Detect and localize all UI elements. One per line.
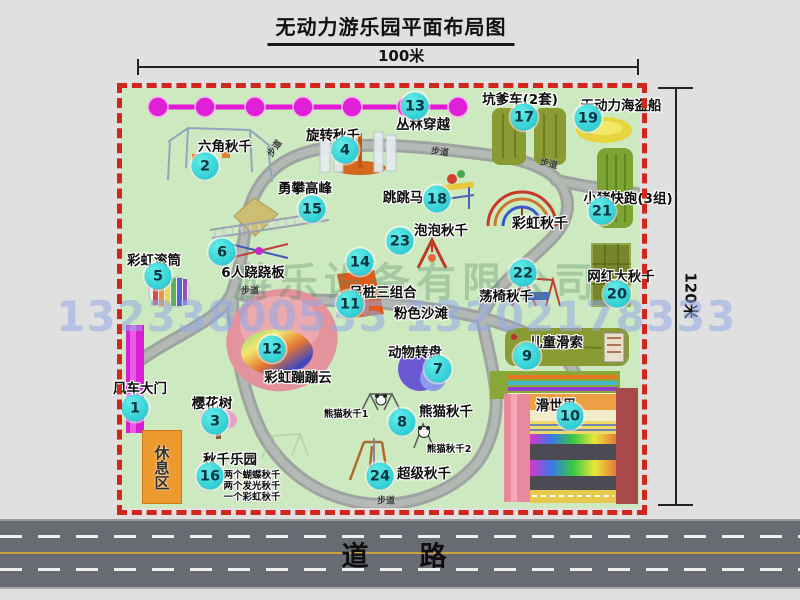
attraction-badge-4: 4 — [332, 137, 359, 164]
attraction-badge-20: 20 — [604, 281, 631, 308]
attraction-label-1: 风车大门 — [113, 377, 167, 397]
attraction-label-18: 跳跳马 — [383, 186, 424, 206]
attraction-badge-21: 21 — [589, 198, 616, 225]
extra-label-2: 熊猫秋千2 — [427, 441, 472, 455]
width-dimension-tick-left — [137, 59, 139, 75]
attraction-badge-14: 14 — [347, 249, 374, 276]
attraction-badge-23: 23 — [387, 228, 414, 255]
screenshot-root: 无动力游乐园平面布局图 100米 120米 — [0, 0, 800, 600]
height-dimension-tick-bottom — [658, 504, 693, 506]
attraction-badge-17: 17 — [511, 104, 538, 131]
attraction-badge-9: 9 — [514, 343, 541, 370]
width-dimension-label: 100米 — [378, 45, 424, 66]
attraction-badge-11: 11 — [337, 291, 364, 318]
attraction-badge-3: 3 — [202, 408, 229, 435]
attraction-badge-10: 10 — [557, 403, 584, 430]
walkway-label-4: 步道 — [377, 494, 395, 507]
page-title: 无动力游乐园平面布局图 — [268, 11, 515, 46]
attraction-badge-8: 8 — [389, 409, 416, 436]
attraction-badge-19: 19 — [575, 105, 602, 132]
road-label: 道 路 — [342, 535, 459, 574]
attraction-label-6: 6人跷跷板 — [221, 261, 284, 281]
map-labels-layer: 风车大门1六角秋千2樱花树3旋转秋千4彩虹滚筒56人跷跷板6动物转盘7熊猫秋千8… — [122, 88, 640, 508]
attraction-badge-5: 5 — [145, 263, 172, 290]
walkway-label-2: 步道 — [539, 155, 560, 172]
attraction-badge-24: 24 — [367, 463, 394, 490]
attraction-badge-22: 22 — [510, 260, 537, 287]
walkway-label-0: 步道 — [264, 137, 285, 159]
walkway-label-3: 步道 — [241, 284, 259, 297]
attraction-badge-12: 12 — [259, 336, 286, 363]
attraction-label-24: 超级秋千 — [397, 462, 451, 482]
attraction-badge-16: 16 — [197, 463, 224, 490]
width-dimension-line — [137, 66, 638, 68]
attraction-label-12: 彩虹蹦蹦云 — [264, 366, 332, 386]
attraction-badge-1: 1 — [122, 395, 149, 422]
attraction-badge-15: 15 — [299, 196, 326, 223]
attraction-label-15: 勇攀高峰 — [278, 177, 332, 197]
attraction-badge-2: 2 — [192, 153, 219, 180]
road: 道 路 — [0, 519, 800, 589]
width-dimension-tick-right — [637, 59, 639, 75]
attraction-badge-18: 18 — [424, 186, 451, 213]
extra-label-5: 一个彩虹秋千 — [223, 489, 280, 503]
attraction-badge-6: 6 — [209, 239, 236, 266]
extra-label-0: 彩虹秋千 — [512, 213, 568, 233]
walkway-label-1: 步道 — [430, 143, 450, 158]
attraction-badge-13: 13 — [402, 93, 429, 120]
attraction-label-22: 荡椅秋千 — [479, 285, 533, 305]
attraction-label-11: 粉色沙滩 — [394, 302, 448, 322]
attraction-badge-7: 7 — [425, 356, 452, 383]
attraction-label-8: 熊猫秋千 — [419, 400, 473, 420]
attraction-label-23: 泡泡秋千 — [414, 219, 468, 239]
height-dimension-tick-top — [658, 87, 693, 89]
extra-label-1: 熊猫秋千1 — [324, 406, 369, 420]
